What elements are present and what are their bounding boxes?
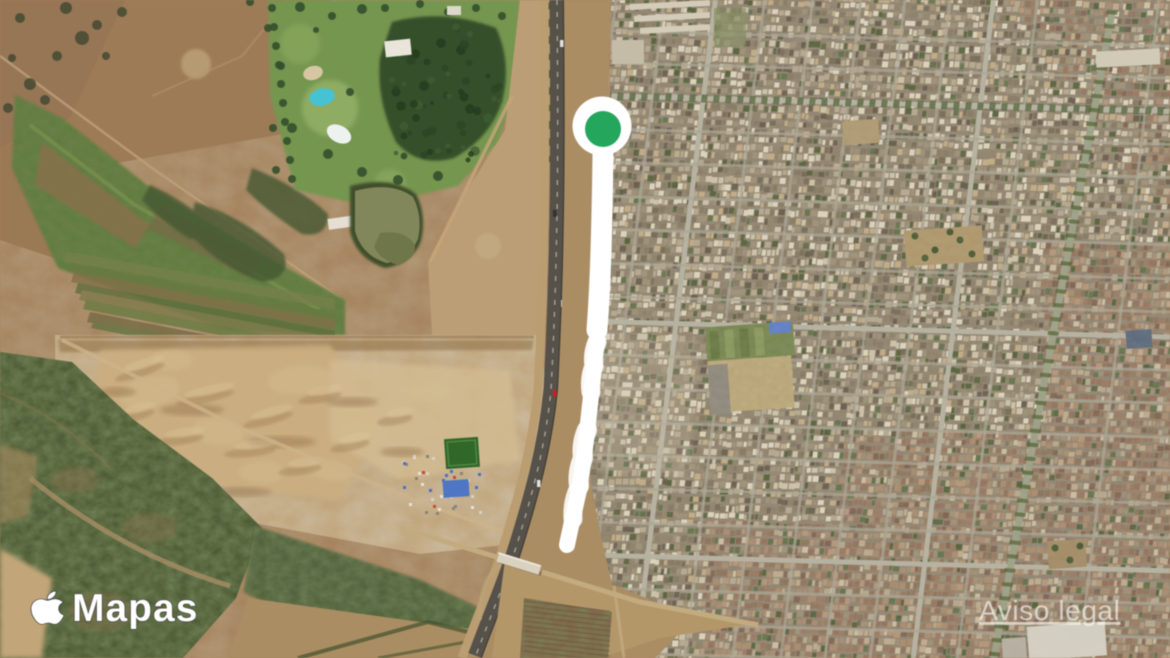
svg-text:Mapas: Mapas [72,587,198,630]
svg-text:Aviso legal: Aviso legal [979,595,1121,626]
